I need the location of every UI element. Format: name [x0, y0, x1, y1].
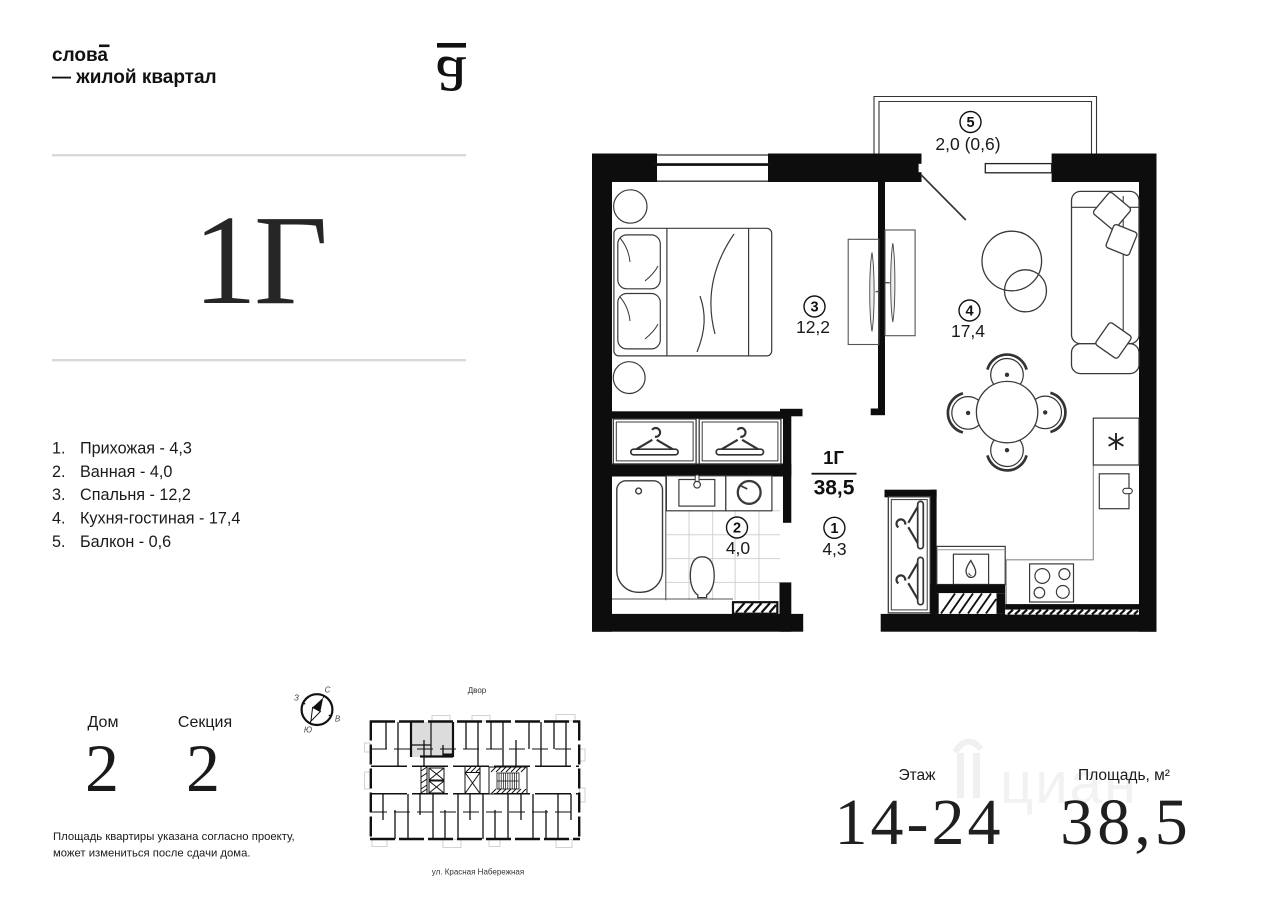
svg-text:Площадь квартиры указана согла: Площадь квартиры указана согласно проект…: [53, 831, 295, 843]
svg-text:4: 4: [965, 304, 973, 320]
svg-text:Секция: Секция: [178, 714, 232, 731]
svg-text:Прихожая - 4,3: Прихожая - 4,3: [80, 440, 192, 458]
svg-text:12,2: 12,2: [796, 317, 830, 337]
svg-text:5: 5: [966, 115, 974, 131]
svg-text:Площадь, м²: Площадь, м²: [1078, 767, 1170, 784]
svg-text:может измениться после сдачи д: может измениться после сдачи дома.: [53, 848, 251, 860]
svg-text:З: З: [294, 694, 299, 703]
svg-text:Ванная - 4,0: Ванная - 4,0: [80, 463, 172, 481]
svg-text:2: 2: [85, 730, 119, 806]
svg-text:4.: 4.: [52, 510, 66, 528]
svg-text:Двор: Двор: [468, 686, 487, 695]
svg-text:2: 2: [186, 730, 220, 806]
svg-text:ул. Красная Набережная: ул. Красная Набережная: [432, 868, 524, 877]
svg-text:С: С: [325, 686, 331, 695]
svg-text:Балкон - 0,6: Балкон - 0,6: [80, 533, 171, 551]
svg-text:2,0 (0,6): 2,0 (0,6): [935, 134, 1000, 154]
svg-text:Ю: Ю: [304, 726, 312, 735]
svg-text:3: 3: [810, 300, 818, 316]
svg-text:1Г: 1Г: [823, 447, 844, 468]
svg-text:3.: 3.: [52, 486, 66, 504]
svg-text:Этаж: Этаж: [898, 767, 936, 784]
svg-text:Спальня - 12,2: Спальня - 12,2: [80, 486, 191, 504]
svg-text:5.: 5.: [52, 533, 66, 551]
svg-text:— жилой квартал: — жилой квартал: [52, 67, 217, 88]
svg-text:1Г: 1Г: [193, 189, 325, 331]
svg-text:а: а: [435, 41, 467, 121]
svg-text:4,0: 4,0: [726, 538, 751, 558]
svg-text:4,3: 4,3: [822, 539, 846, 559]
svg-text:2: 2: [733, 521, 741, 537]
svg-text:1: 1: [830, 521, 838, 537]
svg-text:38,5: 38,5: [814, 477, 855, 500]
svg-text:2.: 2.: [52, 463, 66, 481]
svg-text:Кухня-гостиная - 17,4: Кухня-гостиная - 17,4: [80, 510, 240, 528]
svg-text:1.: 1.: [52, 440, 66, 458]
svg-text:17,4: 17,4: [951, 321, 985, 341]
svg-text:Дом: Дом: [88, 714, 119, 731]
svg-text:В: В: [335, 715, 341, 724]
svg-text:слова: слова: [52, 45, 108, 66]
svg-text:14-24: 14-24: [835, 786, 1004, 859]
svg-text:38,5: 38,5: [1060, 786, 1192, 859]
